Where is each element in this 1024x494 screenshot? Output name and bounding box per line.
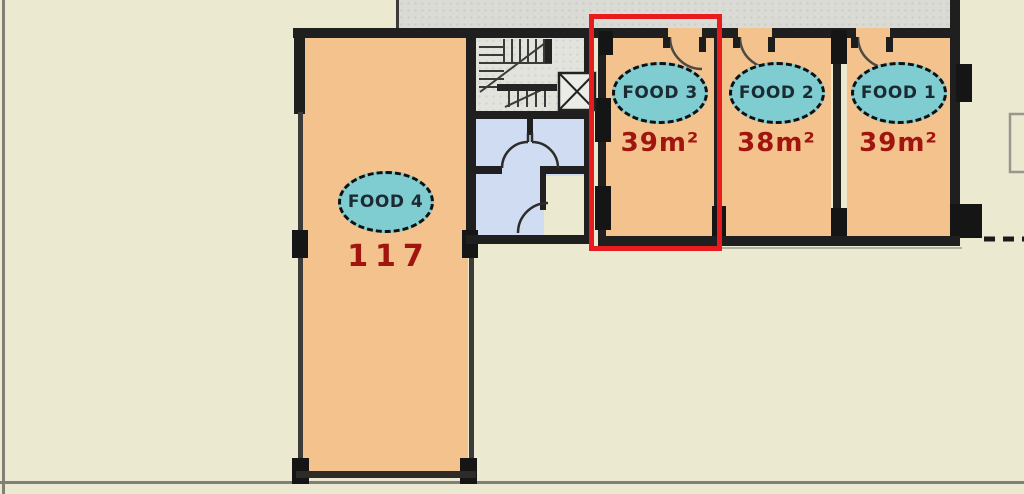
food4-left-wall-lower	[298, 112, 303, 474]
bathroom-mid-wall-left	[476, 166, 502, 174]
staircase-zone	[476, 37, 584, 115]
room-food-4[interactable]: FOOD 4 117	[303, 37, 468, 472]
room-label-food-2-text: FOOD 2	[739, 83, 814, 103]
room-food-2[interactable]: FOOD 2 38m²	[722, 36, 831, 238]
room-area-food-2: 38m²	[737, 128, 816, 158]
plan-bottom-boundary	[0, 481, 1024, 484]
room-area-food-1: 39m²	[859, 128, 938, 158]
selection-highlight-food-3	[589, 14, 722, 251]
room-label-food-2: FOOD 2	[729, 62, 825, 124]
food4-left-jamb-mid	[292, 230, 308, 258]
plan-left-boundary	[2, 0, 5, 494]
bathroom-bottom-wall	[466, 235, 592, 244]
bathroom-top-stub	[527, 111, 533, 135]
food21-jamb-top	[831, 30, 847, 64]
room-label-food-1: FOOD 1	[851, 62, 947, 124]
door-gap-food-2	[738, 28, 772, 38]
food4-right-wall-lower	[469, 245, 474, 474]
bathroom-stall-wall	[540, 166, 546, 210]
terrace-left-edge	[396, 0, 399, 30]
food1-right-corner-block	[950, 204, 982, 238]
food21-jamb-bottom	[831, 208, 847, 238]
right-column-outline	[1010, 114, 1024, 172]
room-label-food-4-text: FOOD 4	[348, 192, 423, 212]
bathroom-corridor	[544, 176, 584, 237]
door-gap-food-1	[856, 28, 890, 38]
room-area-food-4: 117	[340, 239, 431, 274]
food4-bottom-wall	[296, 471, 476, 478]
floor-plan: FOOD 4 117 FOOD 3 39m² FOOD 2 38m² FOOD …	[0, 0, 1024, 494]
food4-left-wall-upper	[294, 28, 305, 114]
food1-right-jamb	[956, 64, 972, 102]
room-food-1[interactable]: FOOD 1 39m²	[847, 36, 950, 238]
room-label-food-4: FOOD 4	[338, 171, 434, 233]
bathroom-mid-wall-right	[540, 166, 592, 174]
food4-right-wall-upper	[466, 28, 476, 245]
room-label-food-1-text: FOOD 1	[861, 83, 936, 103]
